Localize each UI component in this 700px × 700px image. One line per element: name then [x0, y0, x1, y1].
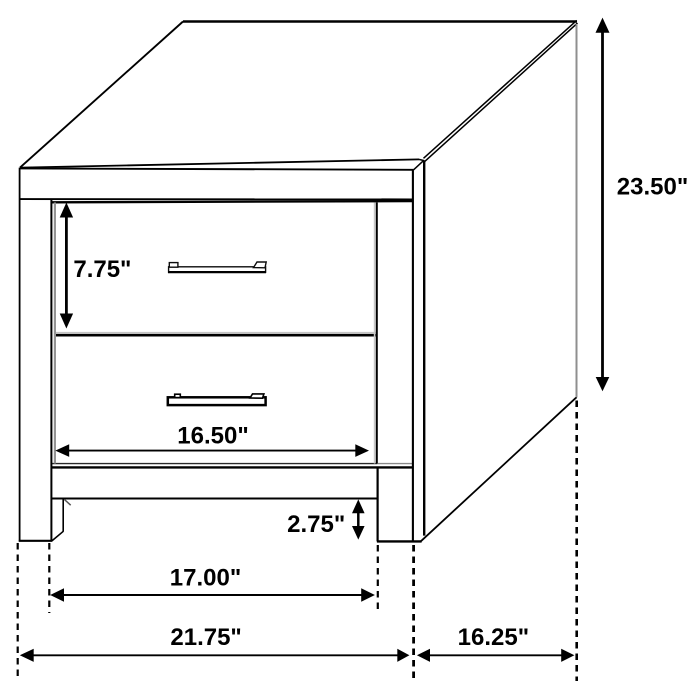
svg-text:16.50": 16.50" — [177, 423, 248, 450]
svg-text:23.50": 23.50" — [617, 174, 688, 201]
svg-text:7.75": 7.75" — [73, 256, 131, 283]
svg-text:21.75": 21.75" — [170, 624, 241, 651]
svg-text:2.75": 2.75" — [287, 511, 345, 538]
svg-text:17.00": 17.00" — [170, 565, 241, 592]
svg-text:16.25": 16.25" — [458, 624, 529, 651]
